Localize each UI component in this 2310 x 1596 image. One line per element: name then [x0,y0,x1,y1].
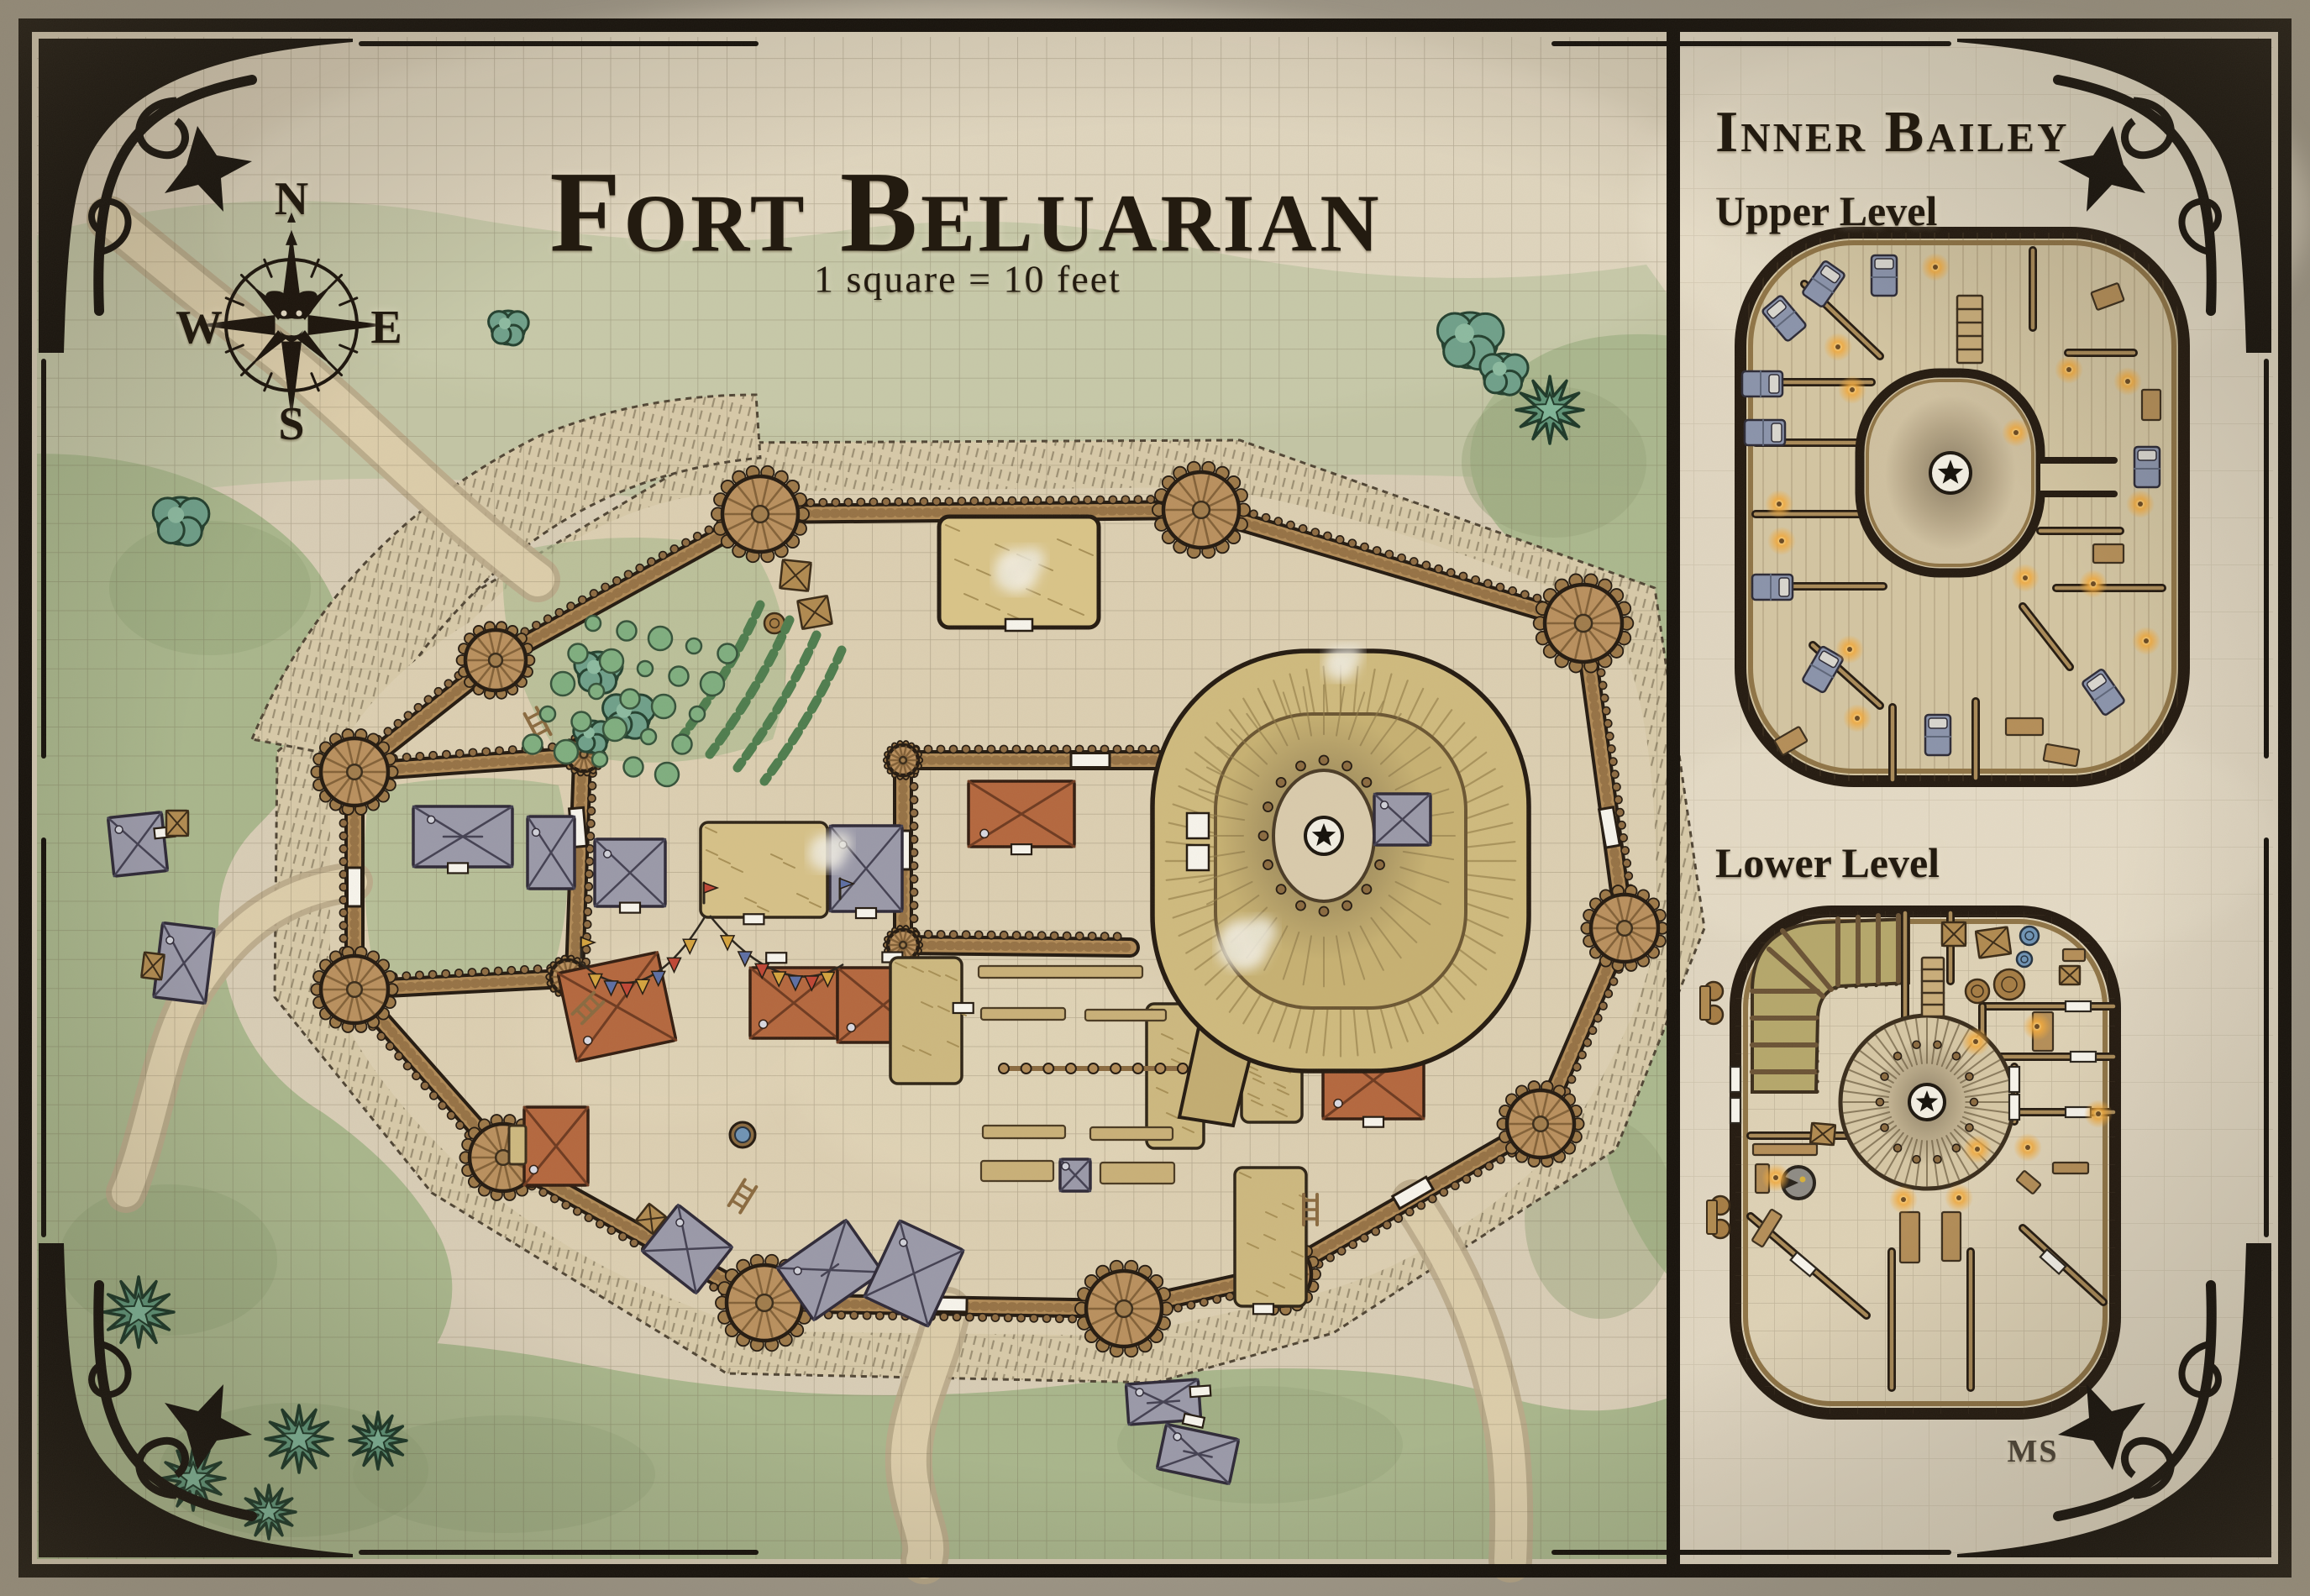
blue-barrel [2017,952,2032,967]
garden-bush [569,644,588,664]
garden-bush [621,690,640,709]
garden-bush [673,735,692,754]
bailey-door [1187,813,1209,838]
crate [2060,966,2080,984]
bed [1742,371,1782,396]
palisade-tower [311,947,397,1032]
hitching-post [1066,1063,1076,1074]
map-scale-note: 1 square = 10 feet [814,257,1121,302]
compass-label-north: N [275,172,308,226]
garden-bush [600,649,623,673]
wooden-crate [797,596,832,629]
crate [1810,1123,1835,1145]
wooden-crate [780,559,811,591]
hay-building [890,958,974,1084]
plan-ladder [1957,296,1982,363]
hitching-post [999,1063,1009,1074]
artist-signature: MS [2008,1433,2059,1470]
table [2142,390,2160,420]
palisade-tower [311,729,397,815]
bench-table [983,1126,1065,1138]
garden-bush [669,667,689,686]
hay-building [1235,1168,1310,1314]
upper-level-plan [1740,233,2184,781]
hitching-post [1155,1063,1165,1074]
palisade-tower [1534,574,1634,672]
building-door [856,908,876,918]
building-door [1253,1304,1273,1314]
hitching-post [1089,1063,1099,1074]
wooden-crate [166,811,188,836]
bailey-door [1187,845,1209,870]
gray-building [595,839,665,913]
building-door [743,914,764,924]
fort-gate [348,868,362,906]
compass-label-south: S [278,397,304,451]
bed [1925,715,1950,755]
hitching-post [1133,1063,1143,1074]
plan-door [2071,1052,2096,1062]
panel-divider [1667,25,1680,1571]
plan-door [1730,1067,1740,1092]
bench-table [1090,1127,1173,1140]
pyr-building [1374,794,1431,845]
pyr-building [1060,1159,1090,1191]
palisade-tower [884,741,922,780]
bench-table [979,966,1142,978]
garden-bush [655,763,679,786]
garden-bush [523,735,543,754]
palisade-tower [1581,885,1667,971]
garden-bush [572,712,591,732]
crate [1976,927,2011,958]
panel-title: Inner Bailey [1715,99,2069,166]
gatehouse-door [1005,619,1032,631]
garden-bush [554,740,578,764]
fluffy-tree [153,497,209,545]
bench-table [1085,1010,1166,1021]
building-door [620,903,640,913]
palisade-tower [1152,462,1250,559]
garden-bush [701,672,724,696]
bed [2134,447,2160,487]
plan-door [2066,1001,2091,1011]
bench-table [981,1008,1065,1020]
bed [1752,575,1793,600]
garden-bush [648,627,672,650]
garden-bush [690,706,705,722]
crate [1942,922,1966,946]
palisade-tower [711,466,809,563]
garden-bush [603,717,627,741]
garden-bush [638,661,653,676]
fluffy-tree [489,311,529,345]
table [2063,949,2085,961]
bed [1872,255,1897,296]
compass-label-east: E [370,301,402,354]
gray-building [413,806,512,873]
table [1753,1144,1817,1155]
gray-building [528,816,575,889]
upper-level-label: Upper Level [1715,186,1937,235]
plan-door [1730,1098,1740,1123]
bench-table [981,1161,1053,1181]
garden-bush [551,672,575,696]
garden-bush [652,695,675,718]
palisade-tower [1497,1081,1583,1167]
thatch-building [701,822,827,924]
hitching-post [1043,1063,1053,1074]
table [1900,1212,1919,1263]
table [1942,1212,1961,1261]
fluffy-tree [1480,354,1528,395]
table [2053,1163,2088,1173]
red-building [524,1107,588,1185]
plan-door [2009,1095,2019,1120]
building-door [1363,1117,1383,1127]
building-door [448,863,468,873]
compass-label-west: W [176,301,223,354]
garden-bush [585,616,601,631]
garden-bush [592,752,607,767]
building-door [1190,1385,1211,1397]
barrel [1994,969,2024,1000]
table [2006,718,2043,735]
palisade-tower [1075,1261,1173,1357]
garden-bush [641,729,656,744]
lower-level-plan [1700,911,2115,1414]
garden-bush [718,644,738,664]
building-door [953,1003,974,1013]
building-door [1011,844,1032,854]
garden-bush [589,684,604,699]
garden-bush [540,706,555,722]
blue-barrel [2020,927,2039,945]
tan-building [509,1126,526,1164]
garden-bush [624,758,643,777]
fantasy-map-page: Fort Beluarian 1 square = 10 feet N W E … [0,0,2310,1596]
hitching-post [1178,1063,1188,1074]
bed [1745,420,1785,445]
bench-table [1100,1163,1174,1184]
hitching-post [1021,1063,1032,1074]
barrel [1966,979,1989,1003]
red-building [969,781,1074,854]
fort-gate [1071,753,1110,768]
building-door [766,953,786,963]
table [2093,544,2124,563]
wooden-crate [141,953,164,980]
hitching-post [1110,1063,1121,1074]
red-building [558,953,676,1062]
ladder [1304,1194,1317,1225]
lower-level-label: Lower Level [1715,838,1940,887]
plan-ladder [1922,958,1944,1016]
garden-bush [617,622,637,641]
plan-door [2009,1067,2019,1092]
garden-bush [686,638,701,654]
palisade-tower [457,622,535,699]
